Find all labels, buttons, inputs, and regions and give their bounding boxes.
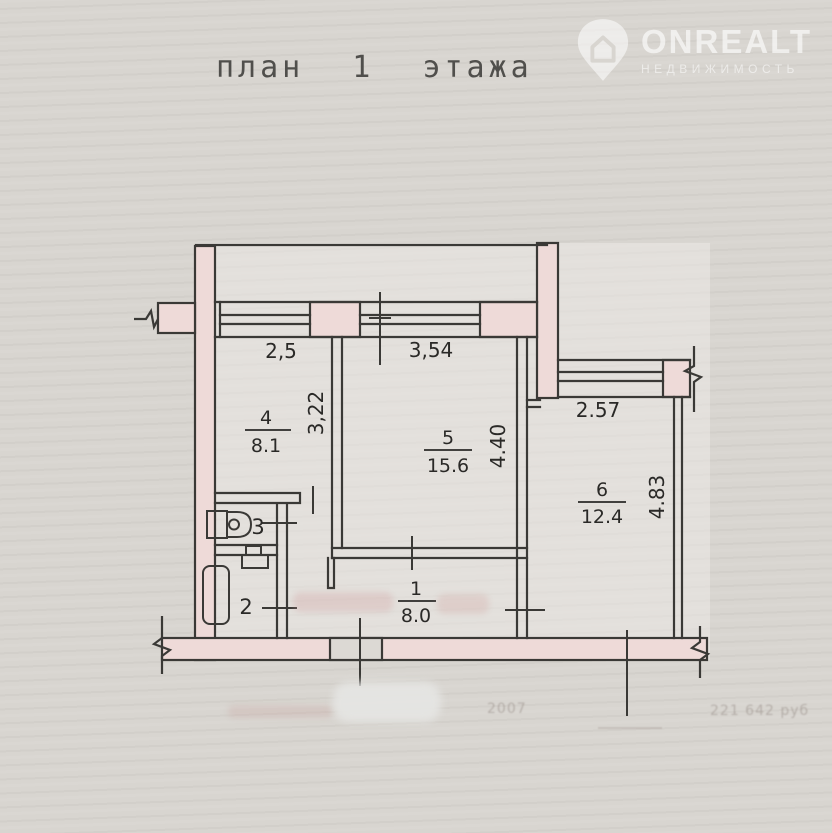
room-area: 15.6 [427, 455, 469, 477]
faint-price: 221 642 руб [710, 703, 809, 719]
window-pier-1 [310, 302, 360, 337]
dim-window-right: 3,54 [409, 338, 454, 362]
dim-room4-depth: 3,22 [304, 391, 328, 436]
redaction-blob [333, 682, 441, 722]
window-pier-room6 [663, 360, 690, 397]
wall-bottom [162, 638, 707, 660]
wall-left-stub [158, 303, 195, 333]
room-2-label: 2 [239, 595, 252, 619]
break-mark-left-stub [134, 311, 158, 327]
room-number: 5 [442, 427, 454, 449]
faint-rule [598, 727, 662, 729]
room-area: 8.1 [251, 435, 281, 457]
room-number: 1 [410, 578, 422, 600]
dim-window-left: 2,5 [265, 339, 297, 363]
watermark-smudge [437, 594, 489, 614]
wall-left [195, 246, 215, 660]
faint-year: 2007 [487, 701, 527, 717]
watermark-smudge [228, 705, 333, 718]
room-area: 12.4 [581, 506, 623, 528]
entrance-door-opening [330, 638, 382, 660]
room-number: 6 [596, 479, 608, 501]
dim-room6-width: 2.57 [576, 398, 621, 422]
dim-room5-depth: 4.40 [486, 424, 510, 469]
window-pier-2 [480, 302, 537, 337]
watermark-smudge [293, 592, 393, 612]
dim-room6-depth: 4.83 [645, 475, 669, 520]
room-area: 8.0 [401, 605, 431, 627]
room-number: 4 [260, 407, 272, 429]
room-3-label: 3 [251, 515, 264, 539]
document-photo: план 1 этажа ONREALT НЕДВИЖИМОСТЬ [0, 0, 832, 833]
wall-right-upper [537, 243, 558, 398]
